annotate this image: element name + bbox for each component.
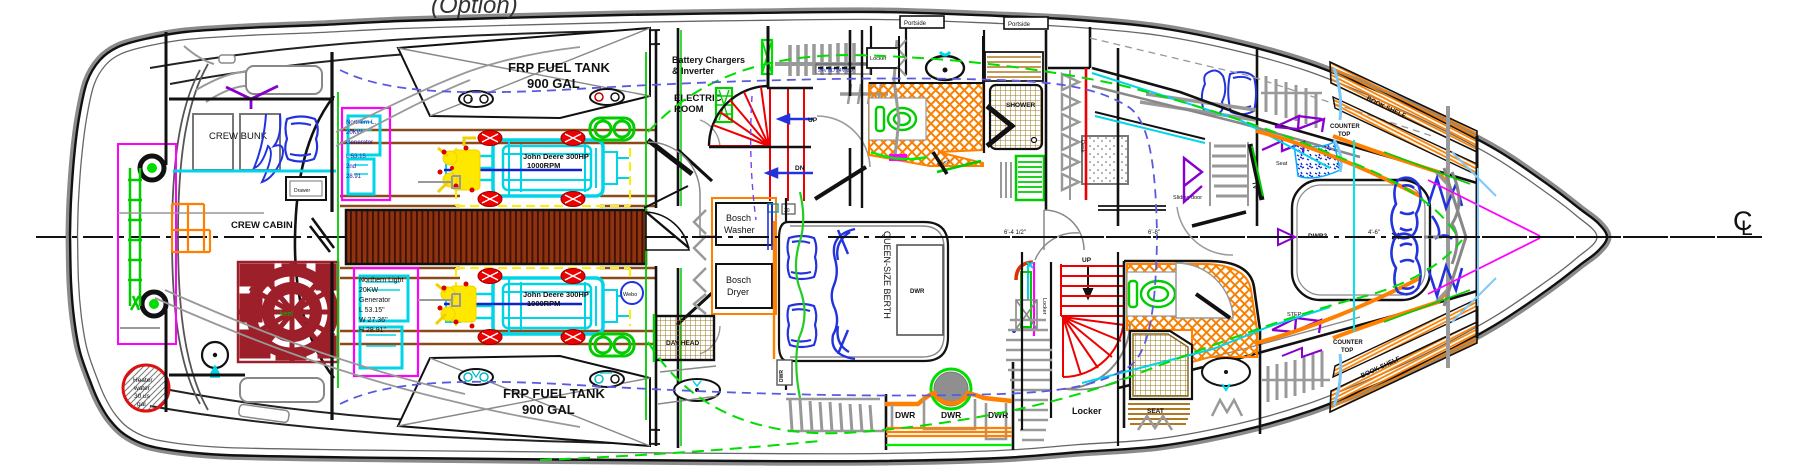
svg-text:John Deere 300HP: John Deere 300HP <box>523 152 589 161</box>
svg-text:Portside: Portside <box>904 21 927 27</box>
svg-text:Bosch: Bosch <box>726 275 751 285</box>
svg-text:Northern Light: Northern Light <box>359 277 403 284</box>
svg-text:W 27.36": W 27.36" <box>359 317 388 324</box>
svg-text:DWR: DWR <box>941 410 961 420</box>
svg-text:1000RPM: 1000RPM <box>527 161 560 170</box>
svg-text:Drawer: Drawer <box>294 188 310 194</box>
svg-text:FRP FUEL TANK: FRP FUEL TANK <box>503 386 605 401</box>
svg-text:DWR: DWR <box>910 289 925 295</box>
svg-text:COUNTER: COUNTER <box>1333 340 1363 346</box>
svg-text:F: F <box>470 98 473 104</box>
svg-text:SEAT: SEAT <box>1147 408 1164 415</box>
svg-text:Battery Chargers: Battery Chargers <box>672 55 745 65</box>
svg-text:CREW CABIN: CREW CABIN <box>231 220 293 231</box>
svg-text:6'-4 1/2": 6'-4 1/2" <box>1004 230 1026 236</box>
svg-text:CREW BUNK: CREW BUNK <box>209 131 268 142</box>
svg-text:Heater: Heater <box>133 377 153 384</box>
svg-text:L 53.15: L 53.15 <box>346 154 366 160</box>
svg-text:John Deere 300HP: John Deere 300HP <box>523 290 589 299</box>
svg-text:DWR: DWR <box>779 370 785 382</box>
svg-text:28.91: 28.91 <box>346 174 362 180</box>
svg-text:Washer: Washer <box>724 225 755 235</box>
svg-text:DN: DN <box>795 165 805 172</box>
svg-text:Webo: Webo <box>623 292 637 298</box>
svg-text:keel: keel <box>280 311 293 318</box>
svg-text:Portside: Portside <box>1008 22 1031 28</box>
svg-text:TOP: TOP <box>1341 348 1353 354</box>
svg-text:ROOM: ROOM <box>674 104 704 115</box>
svg-text:H 28.91": H 28.91" <box>359 327 387 334</box>
svg-text:24V 8D 24V 8D: 24V 8D 24V 8D <box>818 68 853 74</box>
svg-text:DWR: DWR <box>895 410 915 420</box>
svg-text:UP: UP <box>1082 257 1092 264</box>
svg-text:L 53.15": L 53.15" <box>359 307 385 314</box>
svg-text:4'-6": 4'-6" <box>1368 230 1380 236</box>
svg-text:Locker: Locker <box>1072 406 1102 416</box>
svg-text:Bosch: Bosch <box>726 213 751 223</box>
svg-text:gal: gal <box>137 401 146 408</box>
svg-text:Desk: Desk <box>1079 140 1085 153</box>
svg-text:900 GAL: 900 GAL <box>522 402 575 417</box>
svg-text:& Inverter: & Inverter <box>672 66 715 76</box>
svg-text:900 GAL: 900 GAL <box>527 76 580 91</box>
svg-text:Locker: Locker <box>1041 298 1047 315</box>
svg-text:FRP FUEL TANK: FRP FUEL TANK <box>508 60 610 75</box>
svg-text:UP: UP <box>808 117 818 124</box>
svg-text:6'-8": 6'-8" <box>1148 230 1160 236</box>
svg-text:QUEEN-SIZE BERTH: QUEEN-SIZE BERTH <box>882 231 892 319</box>
svg-text:30 us: 30 us <box>134 393 151 400</box>
svg-text:COUNTER: COUNTER <box>1330 124 1360 130</box>
svg-text:1000RPM: 1000RPM <box>527 299 560 308</box>
svg-text:Generator: Generator <box>359 297 391 304</box>
svg-text:Seat: Seat <box>1276 161 1288 167</box>
svg-text:Dryer: Dryer <box>727 287 749 297</box>
svg-text:DAY HEAD: DAY HEAD <box>666 340 700 347</box>
svg-text:(Option): (Option) <box>431 0 518 19</box>
svg-text:20KW: 20KW <box>359 287 378 294</box>
svg-text:water: water <box>133 385 151 392</box>
svg-text:SHOWER: SHOWER <box>1006 102 1036 109</box>
svg-text:2nd: 2nd <box>346 164 356 170</box>
svg-text:Generator: Generator <box>346 140 373 146</box>
